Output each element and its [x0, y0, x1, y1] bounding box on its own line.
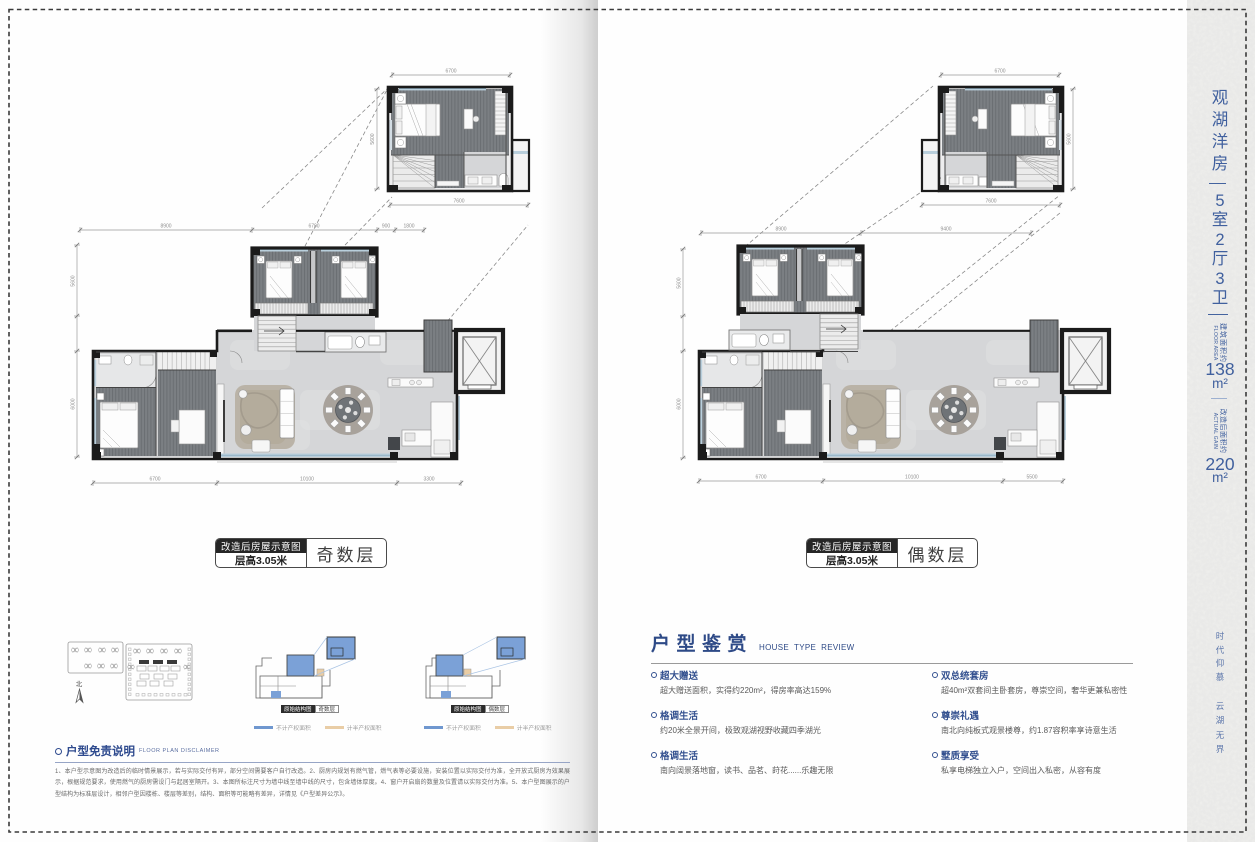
svg-text:900: 900	[382, 224, 391, 230]
svg-text:8900: 8900	[160, 224, 171, 230]
svg-text:3300: 3300	[423, 477, 434, 483]
svg-text:5500: 5500	[1026, 475, 1037, 481]
svg-text:5600: 5600	[1067, 133, 1073, 144]
svg-text:1800: 1800	[403, 224, 414, 230]
svg-text:7600: 7600	[985, 199, 996, 205]
svg-text:6700: 6700	[308, 224, 319, 230]
svg-text:8900: 8900	[775, 227, 786, 233]
svg-text:6700: 6700	[755, 475, 766, 481]
svg-text:北: 北	[76, 680, 83, 688]
svg-text:6700: 6700	[149, 477, 160, 483]
svg-text:7600: 7600	[453, 199, 464, 205]
svg-text:6700: 6700	[445, 69, 456, 75]
svg-text:9400: 9400	[940, 227, 951, 233]
svg-text:5600: 5600	[677, 277, 683, 288]
svg-text:6000: 6000	[71, 398, 77, 409]
svg-text:10100: 10100	[905, 475, 919, 481]
svg-text:6000: 6000	[677, 398, 683, 409]
svg-text:10100: 10100	[300, 477, 314, 483]
svg-text:6700: 6700	[994, 69, 1005, 75]
svg-text:5600: 5600	[370, 133, 376, 144]
svg-text:5600: 5600	[71, 275, 77, 286]
